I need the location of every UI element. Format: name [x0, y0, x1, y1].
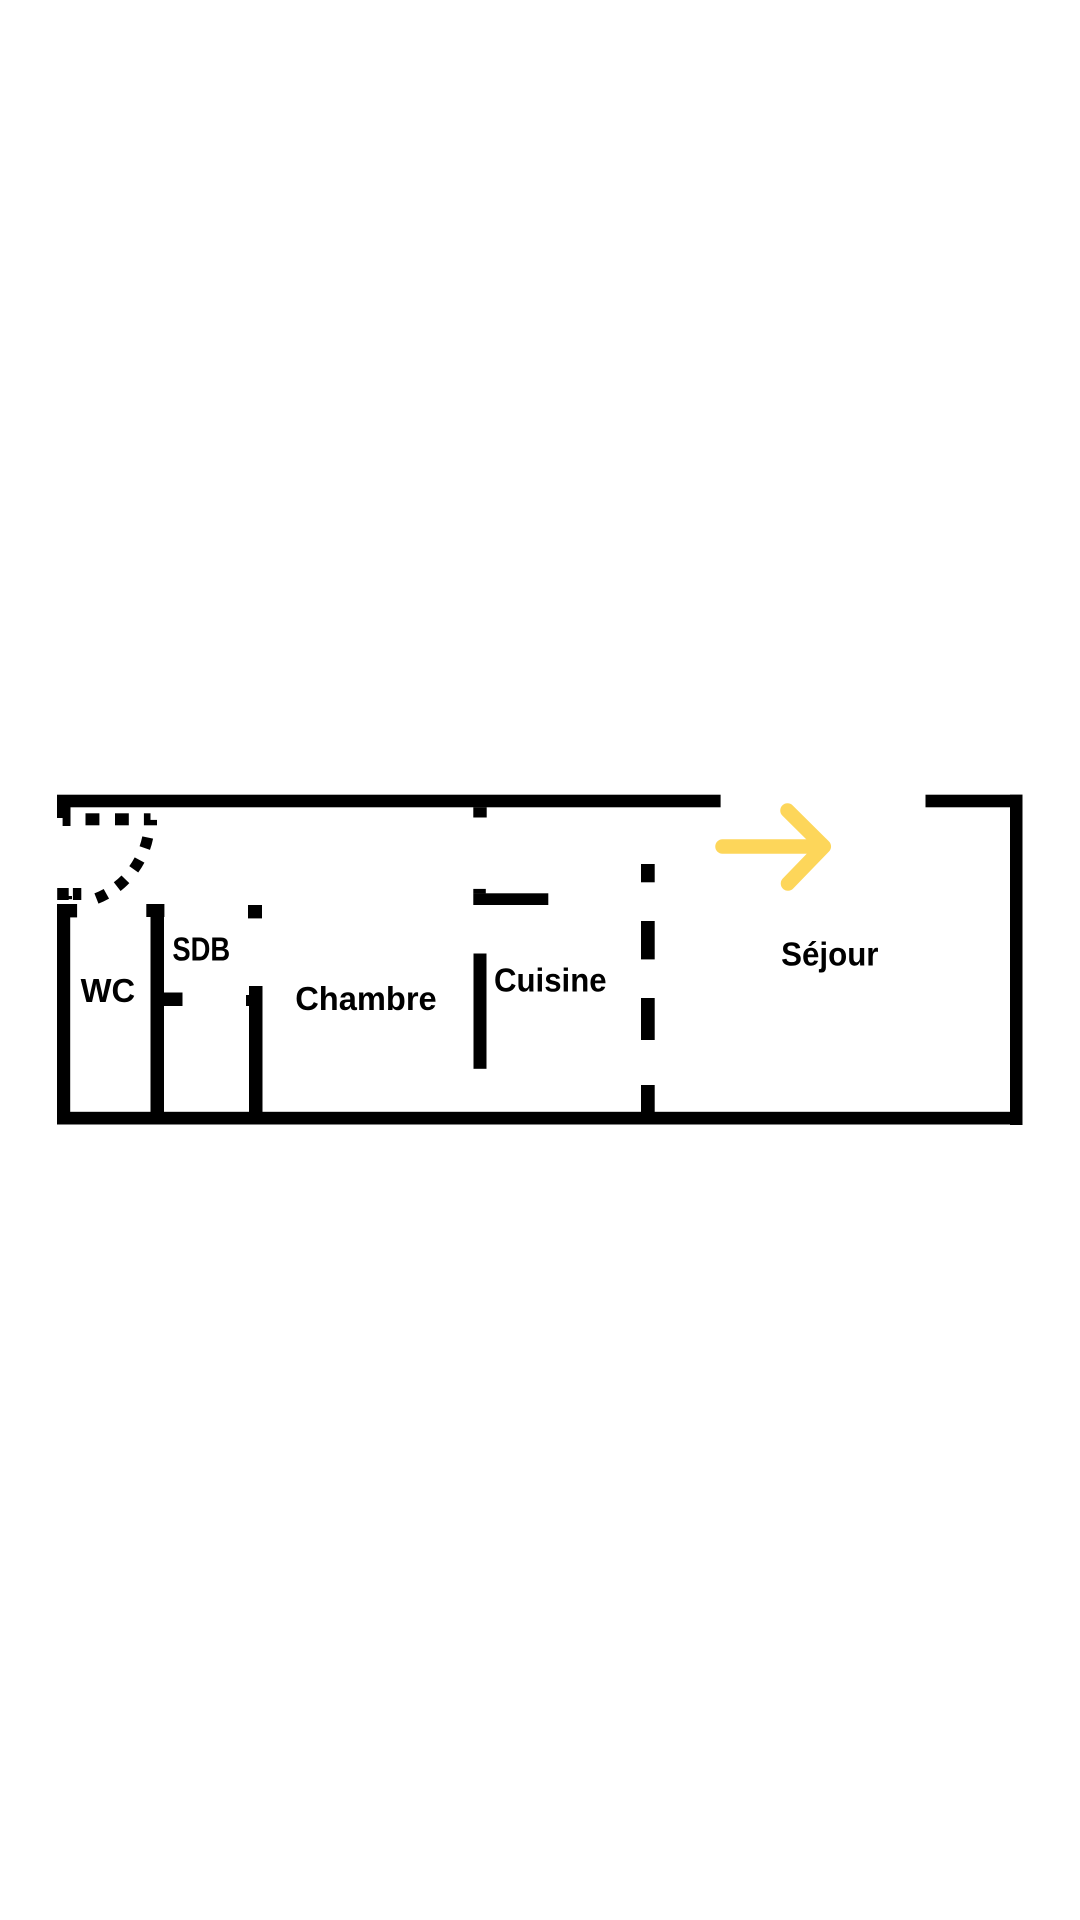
svg-text:Cuisine: Cuisine — [494, 963, 607, 1000]
svg-text:SDB: SDB — [172, 931, 230, 968]
svg-text:Chambre: Chambre — [295, 981, 437, 1018]
svg-text:WC: WC — [81, 973, 136, 1010]
svg-text:Séjour: Séjour — [781, 937, 878, 974]
